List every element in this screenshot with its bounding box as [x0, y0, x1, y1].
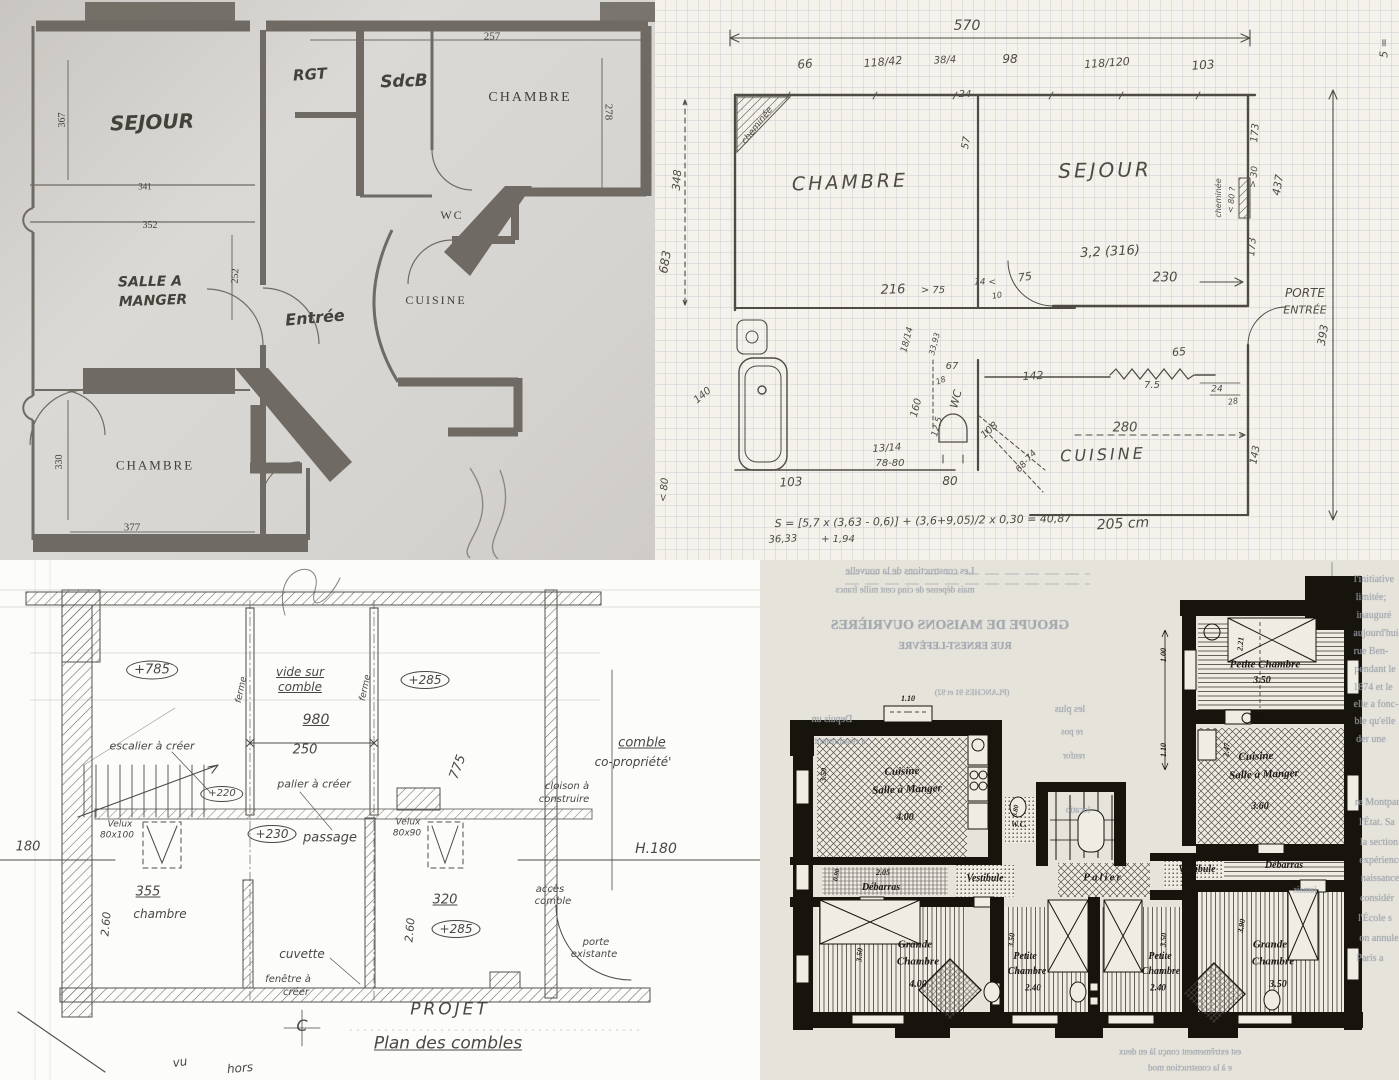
dim: 3.50 — [1269, 980, 1287, 990]
room-label-rgt: RGT — [293, 66, 328, 83]
dim: 3.50 — [1007, 933, 1016, 948]
dim: 216 — [880, 283, 905, 297]
margin-note: hors — [226, 1061, 253, 1075]
label-cloison: cloison à — [545, 782, 589, 792]
plan-label: mais dépense de cinq cent mille francs — [836, 586, 975, 595]
dim: 2.40 — [1025, 984, 1041, 993]
room-label-salle-a-manger: MANGER — [119, 293, 188, 309]
plan-label: renfor — [1063, 752, 1085, 761]
label-fenetre: créer — [283, 988, 309, 998]
label-porte-entree: PORTE — [1285, 287, 1325, 299]
dim: 66 — [797, 57, 813, 70]
plan-label: est extrêmement conçu là en deux — [1119, 1048, 1241, 1057]
dim: > 75 — [921, 286, 945, 296]
plan-label: der une — [1356, 735, 1386, 745]
dim: 570 — [954, 19, 981, 33]
dim: 2.05 — [876, 869, 890, 877]
plan-label: locatio — [1066, 806, 1091, 815]
dim: 980 — [303, 713, 330, 727]
plan-label: 1874 et le — [1353, 683, 1392, 693]
dim: 118/42 — [863, 55, 903, 69]
label-passage: passage — [303, 832, 357, 845]
dim: 38/4 — [934, 55, 957, 66]
room-label-sejour: SEJOUR — [1058, 159, 1152, 181]
dim: 24 — [959, 90, 972, 100]
dim: 352 — [143, 221, 158, 231]
room-label-grande-chambre: Chambre — [1252, 957, 1294, 968]
level-mark: +785 — [126, 661, 178, 680]
margin-note: 5 = — [1379, 38, 1390, 58]
title-projet: PROJET — [410, 1002, 490, 1019]
dim: 78-80 — [875, 459, 904, 469]
surface-formula: + 1,94 — [821, 535, 855, 545]
label-cuvette: cuvette — [279, 948, 324, 960]
dim: 75 — [1017, 271, 1032, 284]
label-fenetre: fenêtre à — [265, 975, 311, 985]
dim: 98 — [1002, 53, 1017, 65]
label-comble-copro: comble — [618, 737, 666, 750]
dim: > 30 — [1250, 166, 1261, 189]
plan-label: re pos — [1061, 728, 1083, 737]
room-label-vestibule: Vestibule — [1178, 865, 1215, 875]
dim: 80 — [942, 475, 957, 487]
quadrant-attic-project: +785vide surcomble+285980250escalier à c… — [0, 560, 760, 1080]
dim: 2.47 — [1222, 743, 1231, 758]
plan-label: considér — [1360, 894, 1394, 904]
room-label-petite-chambre: Petite — [1148, 952, 1171, 962]
plan-label: l'État. Sa — [1359, 818, 1395, 828]
plan-label: Paris a — [1357, 954, 1384, 964]
level-mark: +285 — [401, 671, 450, 689]
dim: 142 — [1022, 370, 1044, 382]
level-mark: +220 — [200, 786, 243, 802]
dim: 2.60 — [403, 917, 416, 942]
room-label-chambre: CHAMBRE — [488, 91, 571, 105]
dim: 3.50 — [855, 948, 864, 963]
scanned-plan-drawing — [0, 0, 655, 560]
label-vide-sur-comble: vide sur — [276, 666, 324, 678]
plan-label: Les constructions de la nouvelle — [846, 567, 975, 577]
dim: 230 — [1153, 272, 1178, 285]
dim: 280 — [1113, 422, 1138, 435]
section-mark: C — [296, 1018, 307, 1034]
room-label-cuisine-sam: Cuisine — [1238, 751, 1273, 763]
plan-label: re Montparnas — [1355, 798, 1399, 808]
room-label-grande-chambre: Grande — [1253, 940, 1287, 951]
dim: 7.5 — [1144, 381, 1160, 391]
level-mark: +285 — [432, 920, 481, 938]
margin-note: vu — [172, 1055, 188, 1069]
dim: 330 — [55, 455, 65, 470]
walls — [735, 95, 1255, 515]
dim: 4.00 — [896, 813, 914, 823]
room-label-petite-chambre: Chambre — [1008, 967, 1046, 977]
plan-label: jamais — [1293, 886, 1317, 895]
bathtub-icon — [737, 320, 787, 470]
dim: 67 — [946, 362, 959, 372]
dim: 65 — [1172, 346, 1187, 358]
label-acces-comble: comble — [535, 897, 572, 907]
dim: 377 — [124, 523, 141, 534]
dim: 348 — [671, 169, 684, 191]
dim: 393 — [1316, 324, 1330, 347]
room-label-petite-chambre: Petite Chambre — [1230, 660, 1301, 671]
room-label-wc: WC — [440, 209, 463, 221]
dim: 355 — [136, 886, 161, 899]
label-cheminee: cheminée — [1215, 178, 1223, 217]
surface-formula: 36,33 — [768, 534, 797, 545]
label-velux: 80x100 — [100, 832, 134, 841]
dim: 2.21 — [1236, 637, 1245, 652]
room-label-chambre: CHAMBRE — [792, 171, 909, 194]
room-label-grande-chambre: Chambre — [897, 957, 939, 968]
dim: 341 — [138, 183, 152, 192]
label-velux: 80x90 — [393, 830, 421, 839]
dim: 278 — [603, 104, 614, 121]
dim-height: 180 — [16, 841, 41, 854]
dim: 3.60 — [1251, 802, 1269, 812]
dim: 257 — [484, 32, 501, 43]
room-label-cuisine: CUISINE — [1060, 446, 1146, 465]
plan-label: e à la construction mod — [1148, 1064, 1232, 1073]
plan-label: rue Ben- — [1354, 647, 1389, 657]
dim: 4.00 — [909, 980, 927, 990]
plan-label: naissance — [1361, 874, 1399, 884]
label-porte-entree: ENTRÉE — [1283, 305, 1326, 316]
dim: 252 — [231, 268, 242, 284]
dim: 437 — [1271, 174, 1285, 197]
dim: 14 < — [974, 279, 996, 288]
plan-label: les plus — [1055, 705, 1085, 715]
stair-icon — [1050, 792, 1120, 860]
plan-label: l'École s — [1358, 914, 1392, 924]
plan-label: Depuis un — [812, 715, 853, 725]
plan-label: inauguré — [1357, 611, 1392, 621]
room-label-palier: Palier — [1083, 873, 1123, 884]
label-cloison: construire — [539, 795, 590, 805]
plan-label: expériences — [1359, 856, 1399, 866]
room-label-salle-a-manger: SALLE A — [118, 274, 182, 289]
plan-label: RUE ERNEST-LEFÈVRE — [898, 642, 1011, 652]
fireplaces — [737, 97, 1250, 218]
room-label-chambre: chambre — [133, 908, 186, 920]
label-porte-existante: porte — [583, 938, 610, 948]
label-comble-copro: co-propriété' — [595, 756, 672, 768]
label-escalier: escalier à créer — [109, 741, 194, 752]
dim: < 80 — [659, 477, 671, 502]
room-label-petite-chambre: Petite — [1013, 952, 1036, 962]
dim: 367 — [58, 113, 68, 128]
room-label-sdb: SdcB — [380, 73, 428, 92]
title-plan-combles: Plan des combles — [374, 1036, 522, 1053]
quadrant-graph-sketch: 57066118/4238/498118/12010324cheminéeCHA… — [655, 0, 1399, 560]
dim: 2.40 — [1150, 984, 1166, 993]
plan-label: l'initiative — [1354, 575, 1394, 585]
room-label-vestibule: Vestibule — [966, 874, 1003, 884]
quadrant-scanned-plan: SEJOURRGTSdcBCHAMBRE257278367341352252SA… — [0, 0, 655, 560]
plan-label: on annule — [1359, 934, 1398, 944]
floor-plans-collage: SEJOURRGTSdcBCHAMBRE257278367341352252SA… — [0, 0, 1399, 1080]
plan-label: aujourd'hui — [1353, 629, 1398, 639]
label-vide-sur-comble: comble — [278, 681, 322, 693]
label-velux: Velux — [108, 821, 133, 830]
signature-scribble — [467, 468, 505, 559]
dim: 173 — [1247, 237, 1259, 257]
room-label-wc: W.C. — [1011, 821, 1027, 829]
label-porte-existante: existante — [571, 950, 618, 960]
plan-label: GROUPE DE MAISONS OUVRIÈRES — [831, 619, 1069, 633]
dim: 1.00 — [1160, 648, 1168, 662]
plan-label: pendant le — [1354, 665, 1395, 675]
dim: 103 — [779, 475, 803, 488]
dim: 173 — [1250, 123, 1262, 143]
dim-height: H.180 — [635, 842, 677, 856]
plan-label: (PLANCHES 91 et 92) — [935, 689, 1009, 697]
plan-label: a résolument — [814, 737, 865, 747]
room-label-sejour: SEJOUR — [110, 111, 195, 134]
dim: 683 — [657, 250, 673, 275]
dim: 24 — [1211, 386, 1222, 395]
plan-label: ble qu'elle — [1355, 717, 1396, 727]
room-label-cuisine: CUISINE — [405, 294, 466, 306]
dim: 205 cm — [1096, 516, 1149, 533]
room-label-grande-chambre: Grande — [898, 940, 932, 951]
room-label-debarras: Débarras — [1265, 861, 1303, 871]
dim: 3.50 — [1159, 933, 1168, 948]
label-velux: Velux — [396, 819, 421, 828]
printed-plan-drawing — [760, 560, 1399, 1080]
plan-label: limitée; — [1356, 593, 1387, 603]
room-label-cuisine-sam: Cuisine — [884, 766, 919, 778]
dim: 2.60 — [99, 911, 112, 936]
plan-label: la section — [1360, 838, 1398, 848]
dim: 3,2 (316) — [1080, 244, 1140, 260]
quadrant-printed-plan: Petite Chambre3.502.21CuisineSalle à Man… — [760, 560, 1399, 1080]
dim: 3.50 — [1253, 676, 1271, 686]
level-mark: +230 — [248, 825, 297, 843]
dim: 320 — [433, 894, 458, 907]
plan-label: elle a fonc- — [1354, 700, 1399, 710]
dim: 3.50 — [819, 768, 828, 783]
dim: 1.10 — [1160, 743, 1168, 757]
dim: 1.10 — [901, 695, 915, 703]
dim: 250 — [293, 744, 318, 757]
dim: 13/14 — [872, 443, 901, 455]
roof-posts — [246, 600, 378, 1000]
dim: 103 — [1191, 58, 1215, 72]
dim: 118/120 — [1084, 56, 1130, 70]
staircase — [78, 708, 218, 817]
room-label-petite-chambre: Chambre — [1142, 967, 1180, 977]
label-palier: palier à créer — [277, 779, 351, 790]
room-label-debarras: Débarras — [862, 883, 900, 893]
room-label-chambre2: CHAMBRE — [116, 459, 194, 472]
label-acces-comble: accès — [536, 885, 565, 895]
